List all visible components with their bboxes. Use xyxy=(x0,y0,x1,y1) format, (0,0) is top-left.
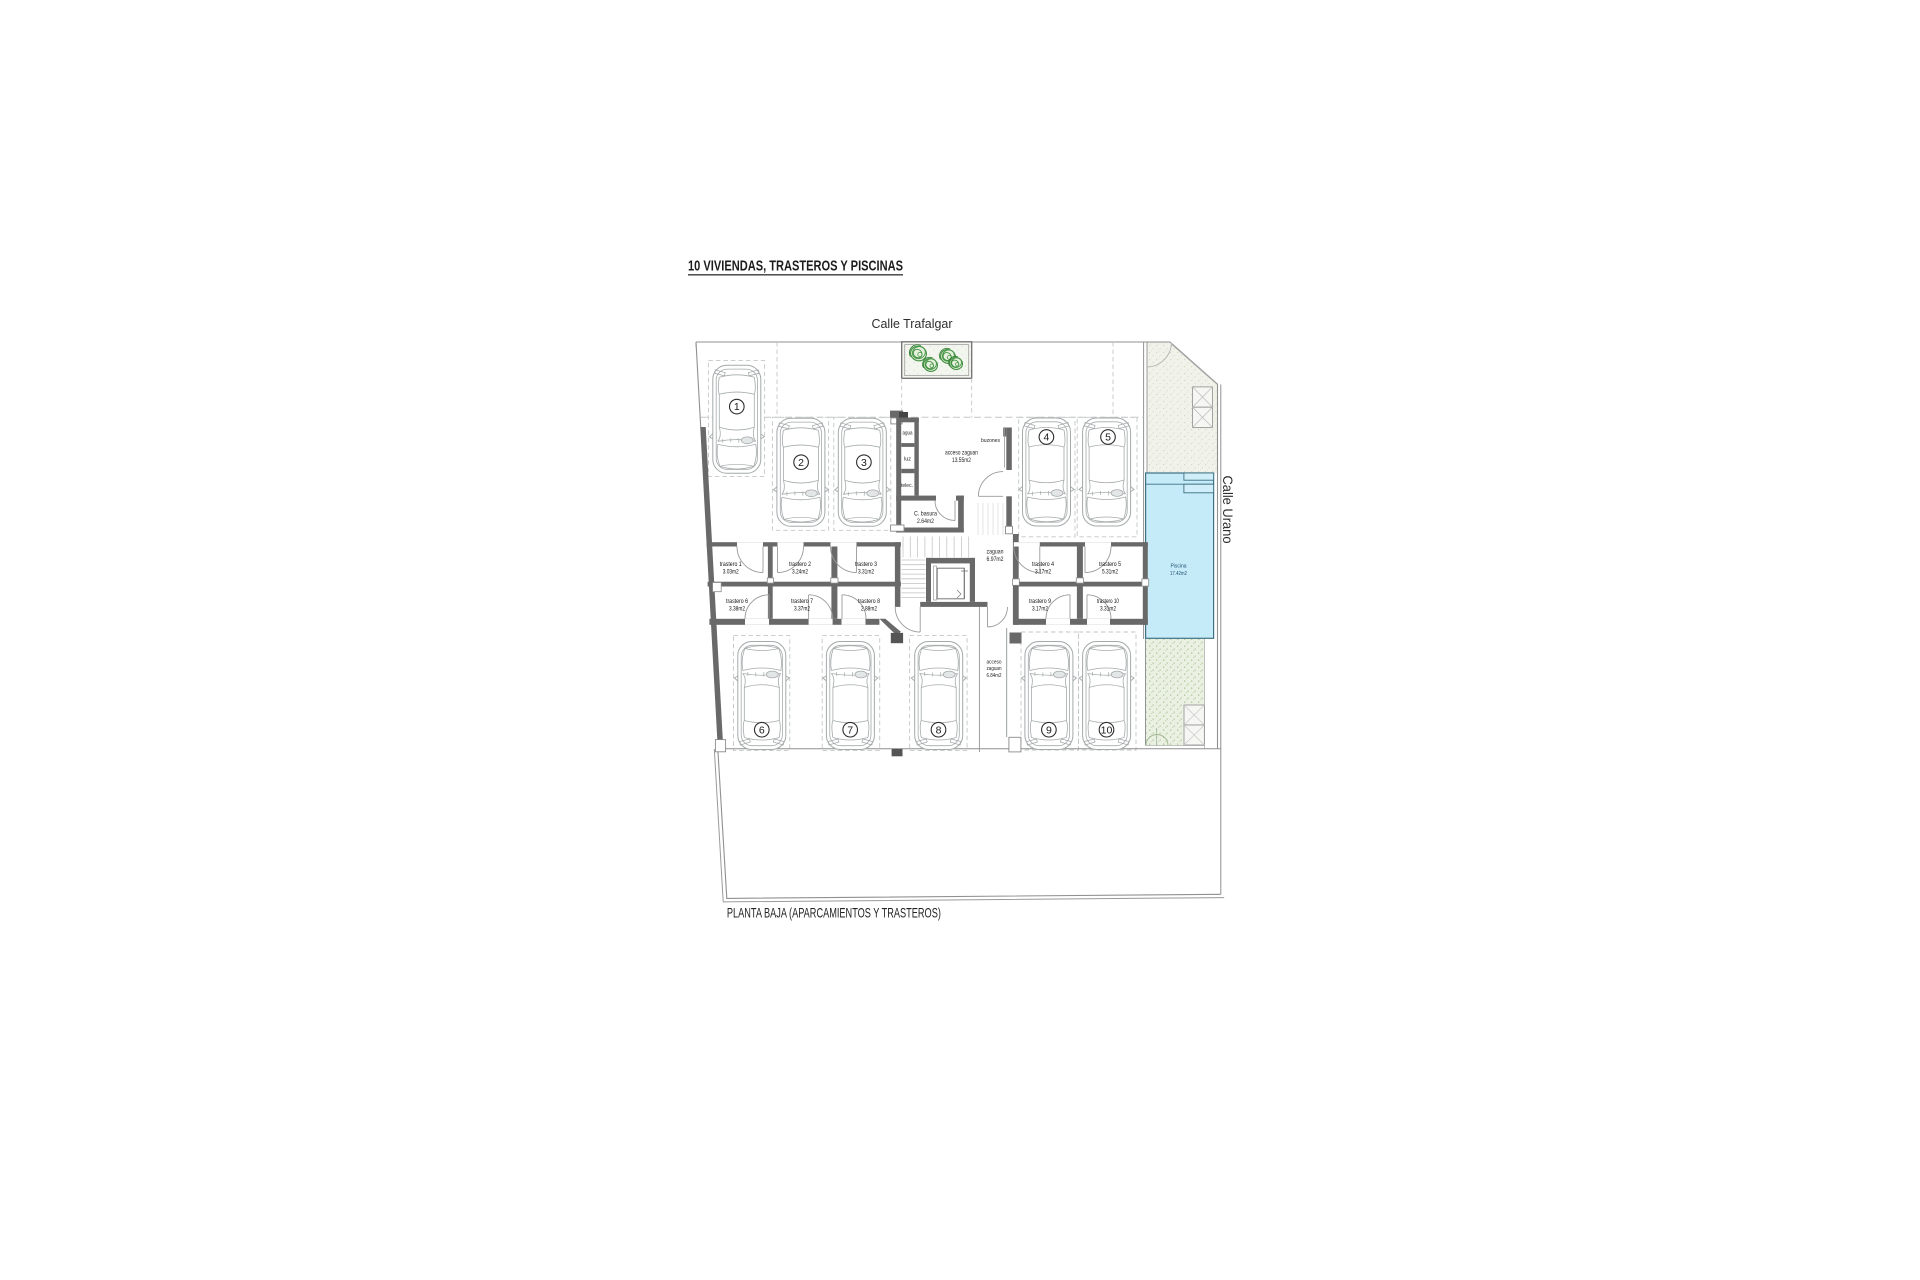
svg-text:3.03m2: 3.03m2 xyxy=(723,570,740,576)
svg-text:5.31m2: 5.31m2 xyxy=(1102,570,1119,576)
svg-text:3.31m2: 3.31m2 xyxy=(858,570,875,576)
svg-text:10: 10 xyxy=(1101,724,1113,736)
svg-text:3.17m2: 3.17m2 xyxy=(1035,570,1052,576)
svg-text:C. basura: C. basura xyxy=(914,512,938,518)
svg-text:Calle Trafalgar: Calle Trafalgar xyxy=(872,316,954,331)
svg-text:telec.: telec. xyxy=(901,483,913,489)
svg-text:5: 5 xyxy=(1105,432,1111,444)
svg-text:trastero 1: trastero 1 xyxy=(720,562,743,568)
svg-text:trastero 2: trastero 2 xyxy=(789,562,812,568)
svg-text:trastero 5: trastero 5 xyxy=(1099,562,1122,568)
svg-text:10 VIVIENDAS, TRASTEROS Y PISC: 10 VIVIENDAS, TRASTEROS Y PISCINAS xyxy=(688,259,903,275)
svg-text:buzones: buzones xyxy=(981,438,1000,444)
svg-text:Calle Urano: Calle Urano xyxy=(1220,476,1236,544)
svg-text:PLANTA BAJA (APARCAMIENTOS Y T: PLANTA BAJA (APARCAMIENTOS Y TRASTEROS) xyxy=(727,906,941,921)
svg-text:3.24m2: 3.24m2 xyxy=(792,570,809,576)
svg-text:3: 3 xyxy=(861,457,867,469)
svg-text:7: 7 xyxy=(847,724,853,736)
svg-text:trastero 6: trastero 6 xyxy=(726,599,749,605)
svg-text:3.17m2: 3.17m2 xyxy=(1032,607,1049,613)
svg-text:2: 2 xyxy=(798,457,804,469)
svg-text:2.64m2: 2.64m2 xyxy=(917,519,935,525)
svg-text:trastero 3: trastero 3 xyxy=(855,562,878,568)
svg-text:acceso: acceso xyxy=(987,660,1002,666)
svg-text:3.31m2: 3.31m2 xyxy=(1100,607,1117,613)
svg-text:trastero 9: trastero 9 xyxy=(1029,599,1052,605)
svg-text:trastero 4: trastero 4 xyxy=(1032,562,1055,568)
svg-text:6: 6 xyxy=(759,724,765,736)
svg-text:1: 1 xyxy=(734,401,740,413)
svg-text:trastero 10: trastero 10 xyxy=(1097,599,1120,605)
svg-text:zaguan: zaguan xyxy=(987,550,1004,556)
svg-text:4: 4 xyxy=(1043,432,1049,444)
svg-text:13.55m2: 13.55m2 xyxy=(952,458,972,464)
svg-text:6.84m2: 6.84m2 xyxy=(987,673,1002,679)
svg-text:2.88m2: 2.88m2 xyxy=(861,607,878,613)
svg-text:agua: agua xyxy=(903,431,913,437)
svg-text:trastero 7: trastero 7 xyxy=(791,599,814,605)
svg-text:9: 9 xyxy=(1046,724,1052,736)
svg-text:acceso zaguan: acceso zaguan xyxy=(945,451,978,457)
svg-text:luz: luz xyxy=(904,457,912,463)
svg-text:17.42m2: 17.42m2 xyxy=(1170,571,1187,577)
svg-text:6.97m2: 6.97m2 xyxy=(987,557,1005,563)
svg-text:trastero 8: trastero 8 xyxy=(858,599,881,605)
svg-text:3.38m2: 3.38m2 xyxy=(729,607,746,613)
svg-text:Piscina: Piscina xyxy=(1171,564,1188,570)
svg-text:zaguan: zaguan xyxy=(987,666,1002,672)
svg-text:3.37m2: 3.37m2 xyxy=(794,607,811,613)
svg-text:8: 8 xyxy=(936,724,942,736)
